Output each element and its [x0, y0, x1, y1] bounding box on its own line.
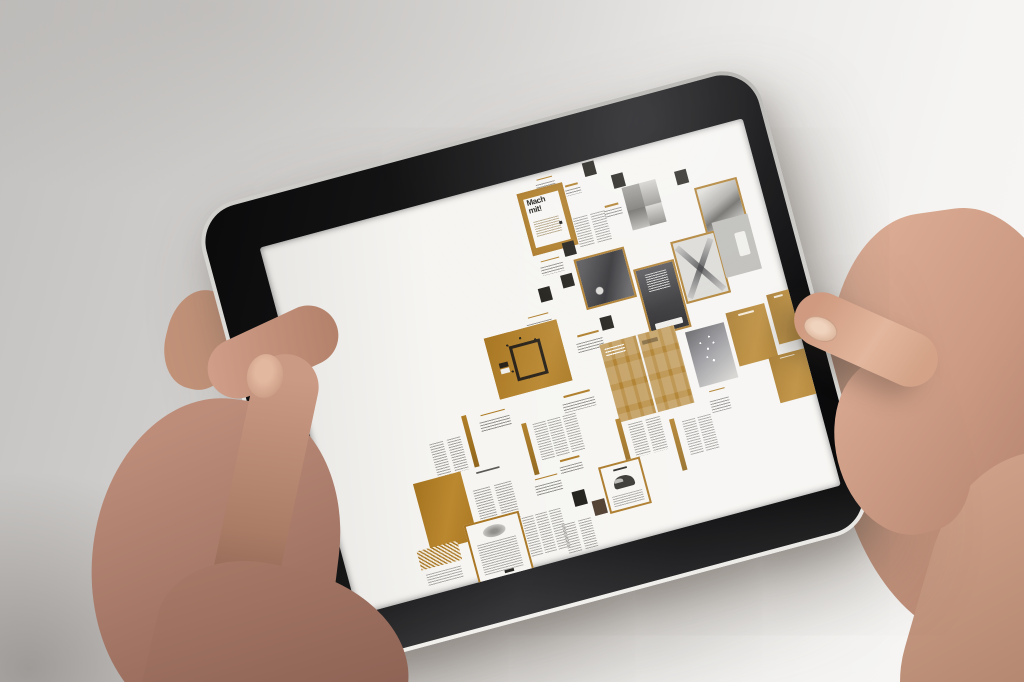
- page-thumb-thumb[interactable]: [674, 169, 689, 185]
- arm-shadow: [0, 470, 260, 682]
- page-thumb-label[interactable]: [705, 386, 735, 414]
- page-thumb-collage[interactable]: [621, 179, 666, 230]
- page-thumb-photoWide[interactable]: [573, 247, 636, 310]
- page-thumb-thumb[interactable]: [599, 315, 614, 331]
- tablet-bezel: Mach mit!: [197, 67, 872, 671]
- right-hand-wrist: [878, 426, 1024, 682]
- tablet-touchscreen[interactable]: Mach mit!: [260, 118, 841, 614]
- page-thumb-label[interactable]: [556, 387, 601, 415]
- page-thumb-label[interactable]: [473, 406, 517, 435]
- page-thumb-spreadTable[interactable]: [483, 320, 572, 400]
- page-thumb-thumb[interactable]: [571, 489, 587, 507]
- home-button-icon: [278, 432, 294, 448]
- page-thumb-text2[interactable]: [628, 416, 668, 457]
- page-thumb-text2[interactable]: [681, 414, 719, 455]
- photo-scene: Mach mit!: [0, 0, 1024, 682]
- page-thumb-text2[interactable]: [562, 517, 599, 554]
- page-thumb-textcols[interactable]: [532, 413, 585, 461]
- page-thumb-thumb[interactable]: [610, 172, 625, 188]
- page-thumb-text2[interactable]: [429, 436, 469, 477]
- page-thumb-thumbBrown[interactable]: [591, 498, 607, 516]
- page-thumb-thumb[interactable]: [537, 286, 552, 302]
- cover-page-text-lines: [533, 215, 563, 237]
- home-button[interactable]: [268, 422, 304, 458]
- page-thumb-spreadGrid[interactable]: [599, 326, 695, 423]
- page-thumb-orange[interactable]: [768, 348, 817, 404]
- page-thumb-thumb[interactable]: [559, 272, 574, 288]
- cover-page: Mach mit!: [523, 191, 571, 249]
- page-thumb-hatch[interactable]: [416, 541, 467, 589]
- cover-page-title: Mach mit!: [526, 192, 560, 214]
- document-contact-sheet: Mach mit!: [260, 118, 841, 614]
- tablet-device: Mach mit!: [192, 62, 876, 676]
- page-thumb-label[interactable]: [555, 454, 588, 476]
- cover-page-mark: [559, 221, 563, 225]
- page-thumb-thumb[interactable]: [581, 160, 596, 176]
